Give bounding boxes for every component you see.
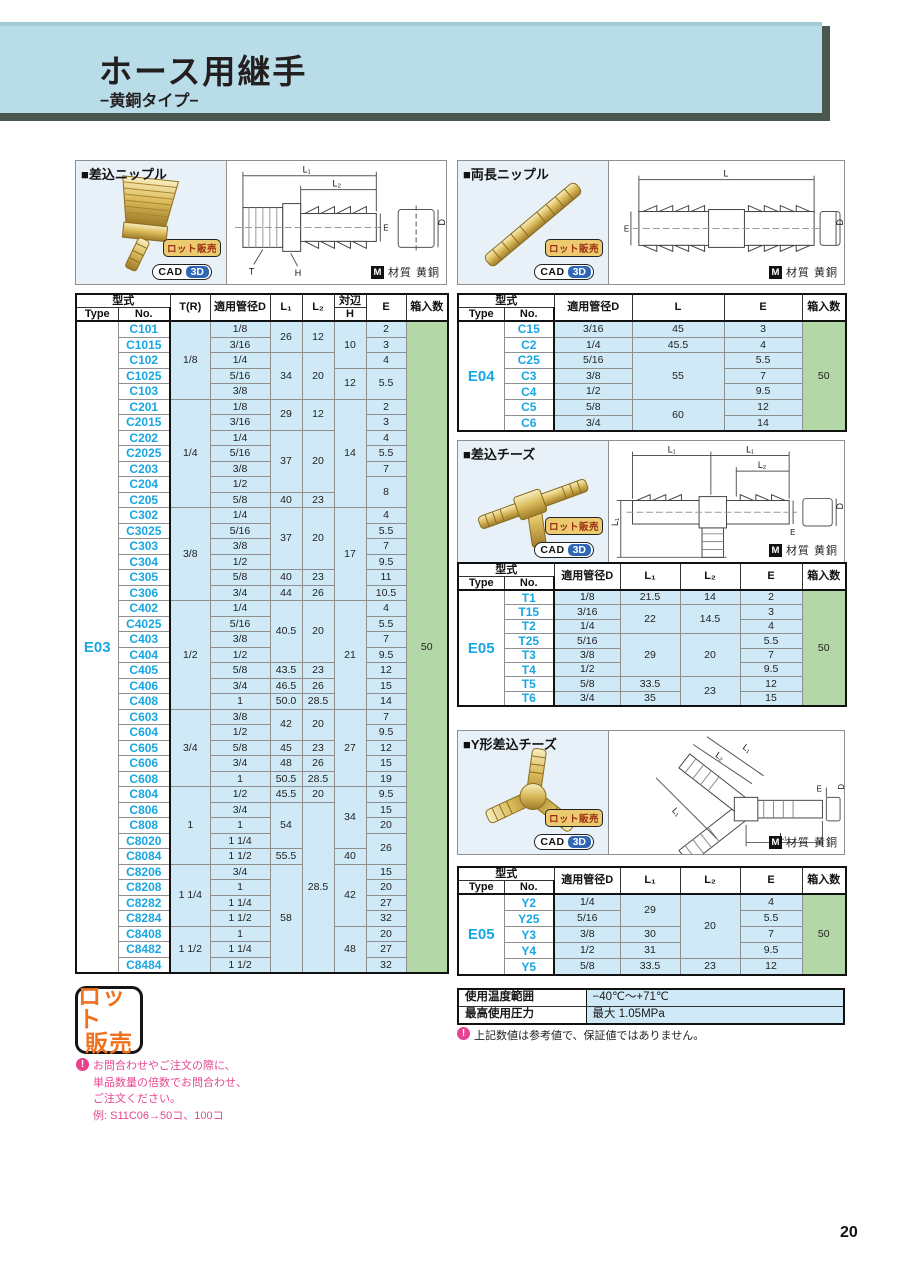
col-header-katashiki: 型式 — [458, 867, 554, 881]
part-number[interactable]: T4 — [504, 662, 554, 676]
value-cell: 32 — [366, 911, 406, 927]
value-cell: 20 — [302, 601, 334, 663]
part-number[interactable]: C404 — [118, 647, 170, 663]
page-subtitle: −黄銅タイプ− — [100, 87, 199, 111]
lot-sales-stamp: ロット 販売 — [75, 986, 143, 1054]
part-number[interactable]: C303 — [118, 539, 170, 555]
value-cell: 7 — [366, 539, 406, 555]
col-header-e: E — [740, 563, 802, 590]
value-cell: 9.5 — [366, 787, 406, 803]
value-cell: 15 — [366, 864, 406, 880]
value-cell: 3/16 — [210, 415, 270, 431]
svg-text:L₂: L₂ — [714, 750, 727, 763]
part-number[interactable]: C25 — [504, 353, 554, 369]
value-cell: 7 — [366, 632, 406, 648]
table-e05-tee: 型式 適用管径D L₁ L₂ E 箱入数 Type No. E05T11/821… — [457, 562, 847, 707]
part-number[interactable]: Y5 — [504, 959, 554, 976]
value-cell: 4 — [724, 337, 802, 353]
col-header-hako: 箱入数 — [406, 294, 448, 321]
value-cell: 9.5 — [740, 662, 802, 676]
value-cell: 1/2 — [210, 787, 270, 803]
value-cell: 20 — [302, 508, 334, 570]
part-number[interactable]: C806 — [118, 802, 170, 818]
product-photo-area: ■差込ニップル ロット販売 CAD 3D — [76, 161, 226, 284]
part-number[interactable]: C2025 — [118, 446, 170, 462]
part-number[interactable]: C102 — [118, 353, 170, 369]
value-cell: 3 — [366, 415, 406, 431]
part-number[interactable]: T25 — [504, 634, 554, 648]
part-number[interactable]: Y3 — [504, 927, 554, 943]
value-cell: 7 — [740, 927, 802, 943]
value-cell: 29 — [270, 399, 302, 430]
value-cell: 3/8 — [170, 508, 210, 601]
part-number[interactable]: C604 — [118, 725, 170, 741]
value-cell: 1 — [210, 694, 270, 710]
material-badge: M 材質 黄銅 — [769, 542, 838, 558]
value-cell: 9.5 — [724, 384, 802, 400]
part-number[interactable]: C603 — [118, 709, 170, 725]
part-number[interactable]: C402 — [118, 601, 170, 617]
col-header-l1: L₁ — [620, 867, 680, 894]
svg-text:L₁: L₁ — [668, 445, 676, 455]
value-cell: 3/4 — [210, 585, 270, 601]
value-cell: 5/8 — [210, 492, 270, 508]
value-cell: 50 — [802, 590, 846, 706]
value-cell: 3/4 — [554, 415, 632, 431]
part-number[interactable]: Y4 — [504, 943, 554, 959]
part-number[interactable]: C203 — [118, 461, 170, 477]
cad-3d-label[interactable]: 3D — [568, 544, 591, 556]
col-header-taihen: 対辺 — [334, 294, 366, 308]
value-cell: 2 — [740, 590, 802, 605]
cad-3d-label[interactable]: 3D — [568, 836, 591, 848]
cad-3d-label[interactable]: 3D — [568, 266, 591, 278]
value-cell: 37 — [270, 430, 302, 492]
value-cell: 1 1/2 — [210, 957, 270, 973]
panel-sashikomi-tee: ■差込チーズ ロット販売 CAD 3D — [457, 440, 845, 563]
value-cell: 27 — [366, 895, 406, 911]
part-number[interactable]: C101 — [118, 321, 170, 337]
value-cell: 45 — [632, 321, 724, 337]
cad-3d-badge[interactable]: CAD 3D — [534, 542, 594, 558]
col-header-l1: L₁ — [270, 294, 302, 321]
part-number[interactable]: C8084 — [118, 849, 170, 865]
lot-sales-badge: ロット販売 — [545, 517, 603, 535]
value-cell: 1/4 — [170, 399, 210, 508]
value-cell: 21 — [334, 601, 366, 710]
cad-label[interactable]: CAD — [540, 266, 564, 278]
value-cell: 50 — [802, 894, 846, 975]
value-cell: 1 — [170, 787, 210, 865]
value-cell: 15 — [366, 802, 406, 818]
col-header-d: 適用管径D — [210, 294, 270, 321]
value-cell: 50 — [406, 321, 448, 973]
value-cell: 1/4 — [210, 430, 270, 446]
part-number[interactable]: T3 — [504, 648, 554, 662]
svg-text:E: E — [383, 223, 388, 232]
lot-note-line: お問合わせやご注文の際に、 — [93, 1058, 236, 1075]
col-header-type: Type — [458, 308, 504, 322]
value-cell: 12 — [740, 959, 802, 976]
value-cell: 3/4 — [210, 864, 270, 880]
value-cell: 5/8 — [210, 570, 270, 586]
svg-text:D: D — [835, 503, 844, 509]
col-header-tr: T(R) — [170, 294, 210, 321]
table-e04: 型式 適用管径D L E 箱入数 Type No. E04C153/164535… — [457, 293, 847, 432]
value-cell: 23 — [302, 740, 334, 756]
value-cell: 3 — [366, 337, 406, 353]
value-cell: 5/8 — [210, 740, 270, 756]
part-number[interactable]: C804 — [118, 787, 170, 803]
value-cell: 1/4 — [210, 353, 270, 369]
value-cell: 17 — [334, 508, 366, 601]
value-cell: 7 — [366, 709, 406, 725]
value-cell: 1/2 — [554, 662, 620, 676]
part-number[interactable]: T5 — [504, 677, 554, 691]
header-band-shadow-right — [822, 26, 830, 113]
part-number[interactable]: C8020 — [118, 833, 170, 849]
material-icon: M — [371, 266, 384, 279]
part-number[interactable]: C15 — [504, 321, 554, 337]
col-header-no: No. — [504, 308, 554, 322]
value-cell: 5/16 — [210, 446, 270, 462]
value-cell: 5.5 — [724, 353, 802, 369]
value-cell: 4 — [740, 894, 802, 911]
value-cell: 1/4 — [554, 337, 632, 353]
col-header-d: 適用管径D — [554, 867, 620, 894]
value-cell: 3/16 — [554, 321, 632, 337]
value-cell: 3 — [724, 321, 802, 337]
value-cell: 2 — [366, 399, 406, 415]
part-number[interactable]: C3 — [504, 368, 554, 384]
spec-value-pressure: 最大 1.05MPa — [586, 1007, 844, 1025]
value-cell: 54 — [270, 802, 302, 849]
value-cell: 20 — [366, 818, 406, 834]
value-cell: 15 — [366, 678, 406, 694]
value-cell: 29 — [620, 634, 680, 677]
value-cell: 11 — [366, 570, 406, 586]
spec-label-temperature: 使用温度範囲 — [458, 989, 586, 1007]
value-cell: 33.5 — [620, 677, 680, 691]
part-number[interactable]: C204 — [118, 477, 170, 493]
type-label[interactable]: E05 — [458, 894, 504, 975]
cad-label[interactable]: CAD — [540, 544, 564, 556]
part-number[interactable]: T15 — [504, 605, 554, 619]
svg-text:L: L — [724, 169, 729, 179]
part-number[interactable]: T1 — [504, 590, 554, 605]
value-cell: 3/16 — [210, 337, 270, 353]
spec-note-text: 上記数値は参考値で、保証値ではありません。 — [474, 1027, 704, 1043]
value-cell: 1/4 — [210, 508, 270, 524]
value-cell: 3/8 — [210, 461, 270, 477]
part-number[interactable]: C4 — [504, 384, 554, 400]
part-number[interactable]: C8408 — [118, 926, 170, 942]
svg-text:L₁: L₁ — [303, 165, 311, 175]
caution-icon: ! — [76, 1058, 89, 1071]
part-number[interactable]: C306 — [118, 585, 170, 601]
section-title-ryocho-nipple: ■両長ニップル — [463, 164, 549, 183]
lot-stamp-line1: ロット — [78, 985, 140, 1032]
part-number[interactable]: C305 — [118, 570, 170, 586]
material-badge: M 材質 黄銅 — [769, 834, 838, 850]
table-e03: 型式 T(R) 適用管径D L₁ L₂ 対辺 E 箱入数 Type No. H … — [75, 293, 449, 974]
col-header-l1: L₁ — [620, 563, 680, 590]
value-cell: 4 — [366, 353, 406, 369]
col-header-type: Type — [76, 308, 118, 322]
value-cell: 1/2 — [554, 384, 632, 400]
value-cell: 3 — [740, 605, 802, 619]
value-cell: 28.5 — [302, 694, 334, 710]
svg-text:D: D — [835, 218, 844, 225]
col-header-d: 適用管径D — [554, 563, 620, 590]
part-number[interactable]: C302 — [118, 508, 170, 524]
part-number[interactable]: C8208 — [118, 880, 170, 896]
value-cell: 27 — [366, 942, 406, 958]
value-cell: 19 — [366, 771, 406, 787]
part-number[interactable]: C405 — [118, 663, 170, 679]
part-number[interactable]: C304 — [118, 554, 170, 570]
value-cell: 43.5 — [270, 663, 302, 679]
part-number[interactable]: C3025 — [118, 523, 170, 539]
col-header-katashiki: 型式 — [458, 563, 554, 577]
type-label[interactable]: E04 — [458, 321, 504, 431]
material-icon: M — [769, 266, 782, 279]
part-number[interactable]: C2 — [504, 337, 554, 353]
type-label[interactable]: E03 — [76, 321, 118, 973]
value-cell: 5.5 — [740, 911, 802, 927]
col-header-katashiki: 型式 — [458, 294, 554, 308]
value-cell: 20 — [302, 709, 334, 740]
value-cell: 40 — [270, 492, 302, 508]
value-cell: 48 — [270, 756, 302, 772]
cad-label[interactable]: CAD — [158, 266, 182, 278]
value-cell: 27 — [334, 709, 366, 787]
value-cell: 1 1/4 — [210, 833, 270, 849]
part-number[interactable]: C608 — [118, 771, 170, 787]
type-label[interactable]: E05 — [458, 590, 504, 706]
value-cell: 40 — [334, 849, 366, 865]
value-cell: 30 — [620, 927, 680, 943]
part-number[interactable]: C1015 — [118, 337, 170, 353]
value-cell: 5.5 — [366, 523, 406, 539]
panel-sashikomi-nipple: ■差込ニップル ロット販売 CAD 3D — [75, 160, 447, 285]
col-header-hako: 箱入数 — [802, 294, 846, 321]
value-cell: 5.5 — [740, 634, 802, 648]
value-cell: 21.5 — [620, 590, 680, 605]
material-icon: M — [769, 544, 782, 557]
lot-note-example: 例: S11C06→50コ、100コ — [76, 1108, 247, 1125]
value-cell: 1/2 — [210, 477, 270, 493]
col-header-l2: L₂ — [680, 867, 740, 894]
value-cell: 23 — [302, 570, 334, 586]
part-number[interactable]: T2 — [504, 619, 554, 633]
material-icon: M — [769, 836, 782, 849]
value-cell: 5.5 — [366, 368, 406, 399]
part-number[interactable]: Y25 — [504, 911, 554, 927]
value-cell: 1/2 — [210, 647, 270, 663]
technical-drawing-area: L E D M 材質 黄銅 — [608, 161, 844, 284]
value-cell: 50 — [802, 321, 846, 431]
value-cell: 3/4 — [554, 691, 620, 706]
value-cell: 26 — [302, 756, 334, 772]
value-cell: 1/8 — [210, 321, 270, 337]
technical-drawing-area: L₁ L₁ L₂ L₁ E D M 材質 黄銅 — [608, 441, 844, 562]
part-number[interactable]: C8284 — [118, 911, 170, 927]
value-cell: 45.5 — [632, 337, 724, 353]
part-number[interactable]: Y2 — [504, 894, 554, 911]
value-cell: 3/4 — [210, 756, 270, 772]
svg-text:L₂: L₂ — [333, 179, 342, 189]
value-cell: 3/8 — [210, 539, 270, 555]
part-number[interactable]: C5 — [504, 399, 554, 415]
svg-text:E: E — [817, 785, 822, 794]
part-number[interactable]: C606 — [118, 756, 170, 772]
col-header-l: L — [632, 294, 724, 321]
part-number[interactable]: C103 — [118, 384, 170, 400]
value-cell: 46.5 — [270, 678, 302, 694]
section-title-sashikomi-tee: ■差込チーズ — [463, 444, 535, 463]
part-number[interactable]: C2015 — [118, 415, 170, 431]
material-badge: M 材質 黄銅 — [371, 264, 440, 280]
product-photo-area: ■Y形差込チーズ ロット販売 CAD 3D — [458, 731, 608, 854]
value-cell: 34 — [334, 787, 366, 849]
spec-value-temperature: −40℃〜+71℃ — [586, 989, 844, 1007]
value-cell: 1 1/4 — [170, 864, 210, 926]
part-number[interactable]: C205 — [118, 492, 170, 508]
value-cell: 5/16 — [554, 911, 620, 927]
value-cell: 1 — [210, 926, 270, 942]
col-header-l2: L₂ — [302, 294, 334, 321]
part-number[interactable]: C1025 — [118, 368, 170, 384]
value-cell: 1 1/2 — [210, 911, 270, 927]
svg-text:L₁: L₁ — [670, 805, 683, 818]
value-cell: 1/2 — [170, 601, 210, 710]
value-cell: 12 — [366, 663, 406, 679]
part-number[interactable]: C201 — [118, 399, 170, 415]
value-cell: 3/8 — [554, 927, 620, 943]
value-cell: 1/8 — [554, 590, 620, 605]
value-cell: 23 — [302, 663, 334, 679]
value-cell: 50.5 — [270, 771, 302, 787]
value-cell: 34 — [270, 353, 302, 400]
value-cell: 3/4 — [170, 709, 210, 787]
svg-text:D: D — [437, 218, 446, 225]
part-number[interactable]: C6 — [504, 415, 554, 431]
page-number: 20 — [840, 1224, 858, 1242]
lot-stamp-line2: 販売 — [85, 1032, 133, 1055]
col-header-h: H — [334, 308, 366, 322]
value-cell: 26 — [270, 321, 302, 353]
part-number[interactable]: T6 — [504, 691, 554, 706]
value-cell: 3/16 — [554, 605, 620, 619]
part-number[interactable]: C403 — [118, 632, 170, 648]
value-cell: 31 — [620, 943, 680, 959]
cad-3d-badge[interactable]: CAD 3D — [534, 834, 594, 850]
product-photo-area: ■両長ニップル ロット販売 CAD 3D — [458, 161, 608, 284]
value-cell: 5.5 — [366, 446, 406, 462]
value-cell: 40.5 — [270, 601, 302, 663]
value-cell: 5/16 — [210, 523, 270, 539]
value-cell: 9.5 — [366, 725, 406, 741]
material-label: 材質 黄銅 — [388, 264, 440, 280]
col-header-katashiki: 型式 — [76, 294, 170, 308]
value-cell: 20 — [302, 430, 334, 492]
part-number[interactable]: C8482 — [118, 942, 170, 958]
value-cell: 28.5 — [302, 771, 334, 787]
value-cell: 3/8 — [554, 648, 620, 662]
part-number[interactable]: C406 — [118, 678, 170, 694]
part-number[interactable]: C4025 — [118, 616, 170, 632]
col-header-no: No. — [504, 881, 554, 895]
value-cell: 4 — [366, 508, 406, 524]
part-number[interactable]: C808 — [118, 818, 170, 834]
caution-icon: ! — [457, 1027, 470, 1040]
material-label: 材質 黄銅 — [786, 264, 838, 280]
col-header-d: 適用管径D — [554, 294, 632, 321]
part-number[interactable]: C408 — [118, 694, 170, 710]
part-number[interactable]: C8206 — [118, 864, 170, 880]
svg-text:L₁: L₁ — [741, 742, 753, 755]
material-label: 材質 黄銅 — [786, 542, 838, 558]
part-number[interactable]: C8282 — [118, 895, 170, 911]
part-number[interactable]: C8484 — [118, 957, 170, 973]
value-cell: 5/16 — [210, 368, 270, 384]
lot-sales-badge: ロット販売 — [545, 809, 603, 827]
technical-drawing-area: L₂ L₁ L₁ L₁ E D M 材質 黄銅 — [608, 731, 844, 854]
value-cell: 20 — [302, 787, 334, 803]
value-cell: 26 — [366, 833, 406, 864]
svg-text:L₁: L₁ — [746, 445, 754, 455]
cad-3d-badge[interactable]: CAD 3D — [534, 264, 594, 280]
value-cell: 26 — [302, 585, 334, 601]
value-cell: 9.5 — [366, 647, 406, 663]
value-cell: 3/8 — [554, 368, 632, 384]
value-cell: 35 — [620, 691, 680, 706]
value-cell: 5/8 — [554, 399, 632, 415]
value-cell: 1/8 — [170, 321, 210, 399]
value-cell: 5/16 — [554, 634, 620, 648]
col-header-no: No. — [118, 308, 170, 322]
col-header-e: E — [740, 867, 802, 894]
value-cell: 1/8 — [210, 399, 270, 415]
cad-3d-badge[interactable]: CAD 3D — [152, 264, 212, 280]
value-cell: 1/4 — [210, 601, 270, 617]
value-cell: 14 — [366, 694, 406, 710]
product-photo-area: ■差込チーズ ロット販売 CAD 3D — [458, 441, 608, 562]
value-cell: 23 — [302, 492, 334, 508]
value-cell: 12 — [334, 368, 366, 399]
value-cell: 5.5 — [366, 616, 406, 632]
value-cell: 1 1/2 — [210, 849, 270, 865]
value-cell: 3/8 — [210, 709, 270, 725]
svg-text:E: E — [624, 224, 629, 233]
svg-text:E: E — [790, 528, 795, 537]
section-title-sashikomi-nipple: ■差込ニップル — [81, 164, 167, 183]
value-cell: 15 — [740, 691, 802, 706]
value-cell: 7 — [724, 368, 802, 384]
value-cell: 9.5 — [366, 554, 406, 570]
value-cell: 48 — [334, 926, 366, 973]
page-title: ホース用継手 — [99, 45, 307, 93]
value-cell: 1 1/4 — [210, 942, 270, 958]
part-number[interactable]: C605 — [118, 740, 170, 756]
cad-3d-label[interactable]: 3D — [186, 266, 209, 278]
col-header-type: Type — [458, 577, 504, 591]
value-cell: 40 — [270, 570, 302, 586]
value-cell: 14 — [334, 399, 366, 508]
part-number[interactable]: C202 — [118, 430, 170, 446]
cad-label[interactable]: CAD — [540, 836, 564, 848]
